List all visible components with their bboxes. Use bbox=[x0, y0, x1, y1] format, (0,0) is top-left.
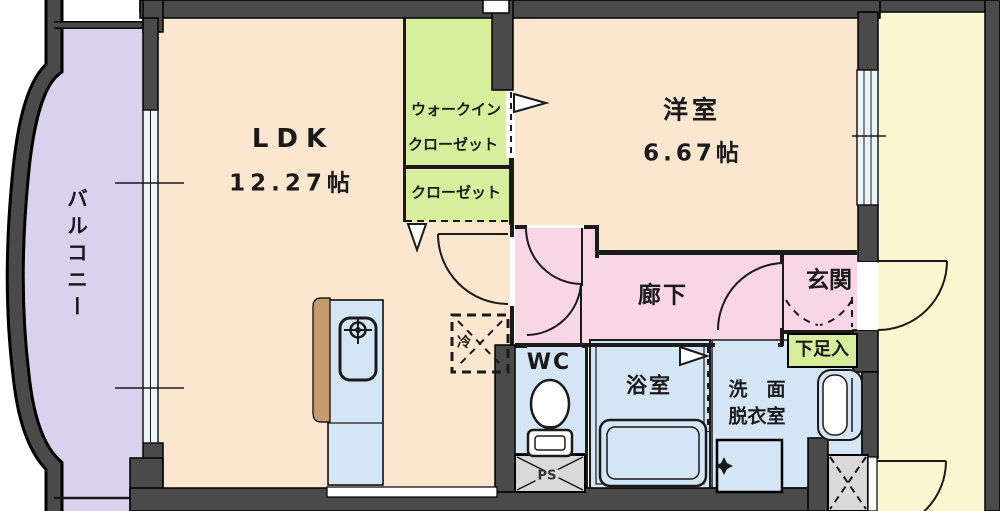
toilet-bowl bbox=[531, 380, 569, 428]
refrigerator-label: 冷 bbox=[455, 336, 473, 350]
pipe-space-label: PS bbox=[536, 470, 559, 483]
western-room-bottom-wall bbox=[598, 250, 857, 255]
corridor-outer-wall bbox=[985, 0, 1000, 511]
meter-box-door bbox=[868, 457, 877, 511]
shoe-box-label: 下足入 bbox=[795, 341, 849, 359]
hallway-entrance-wall-upper bbox=[780, 255, 784, 263]
vanity-basin bbox=[823, 375, 847, 435]
ldk-label: LDK bbox=[252, 126, 334, 152]
bathroom-label: 浴室 bbox=[626, 376, 672, 397]
front-door-threshold bbox=[857, 262, 878, 330]
washroom-label-line1: 洗 面 bbox=[728, 381, 785, 400]
bathtub bbox=[600, 420, 706, 486]
wc-doorjamb-left bbox=[515, 345, 527, 348]
ldk-wc-thick-wall bbox=[495, 345, 515, 492]
ldk-bottom-ledge bbox=[327, 487, 497, 497]
hallway-label: 廊下 bbox=[638, 285, 688, 308]
top-wall-vent bbox=[483, 0, 509, 13]
meter-box-left-wall bbox=[808, 438, 828, 511]
entrance-label: 玄関 bbox=[806, 270, 852, 293]
walk-in-closet-label-line1: ウォークイン bbox=[411, 103, 501, 118]
ldk-hallway-wall-lower bbox=[510, 306, 514, 348]
balcony-label: バルコニー bbox=[66, 188, 87, 323]
unit-right-wall-mid bbox=[858, 205, 878, 262]
washroom-label-line2: 脱衣室 bbox=[728, 408, 785, 427]
wc-label: WC bbox=[527, 352, 571, 374]
wic-closet-divider-wall bbox=[403, 165, 510, 169]
hallway-bottom-wall-right bbox=[778, 343, 783, 347]
ldk-left-wall-upper bbox=[143, 18, 158, 110]
meter-box bbox=[828, 455, 868, 511]
closet-right-wall bbox=[509, 157, 514, 225]
hallway-floor bbox=[598, 255, 783, 343]
walk-in-closet-label-line2: クローゼット bbox=[408, 138, 498, 153]
kitchen-faucet-center bbox=[355, 327, 361, 333]
western-room-floor-lower bbox=[598, 225, 857, 253]
closet-label: クローゼット bbox=[411, 186, 501, 201]
hallway-bottom-wall bbox=[515, 343, 715, 347]
western-room-window bbox=[857, 70, 878, 205]
ldk-size-label: 12.27帖 bbox=[229, 173, 355, 196]
unit-right-wall-washroom bbox=[862, 372, 878, 458]
western-room-size-label: 6.67帖 bbox=[643, 143, 743, 166]
ldk-hallway-wall-upper bbox=[510, 225, 514, 237]
unit-right-wall-top bbox=[858, 12, 878, 70]
closet-left-wall bbox=[403, 13, 406, 222]
floor-plan-drawing bbox=[0, 0, 1000, 511]
kitchen-counter-edge bbox=[313, 298, 330, 422]
floor-plan: LDK 12.27帖 洋室 6.67帖 ウォークイン クローゼット クローゼット… bbox=[0, 0, 1000, 511]
western-room-label: 洋室 bbox=[663, 98, 721, 123]
